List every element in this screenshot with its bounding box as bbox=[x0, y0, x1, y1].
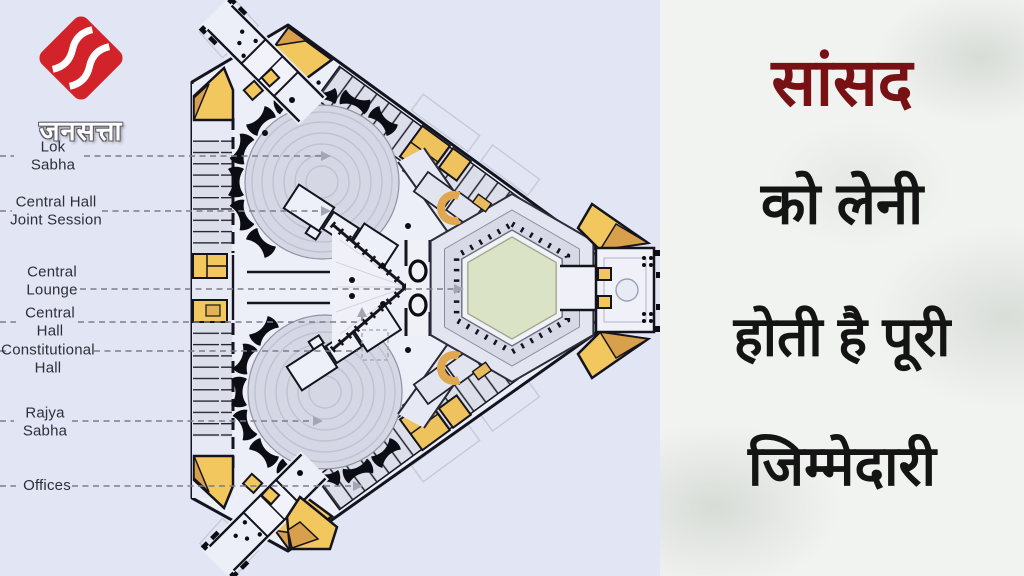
label-central-lounge: Central Lounge bbox=[26, 263, 77, 298]
label-constitutional-hall: Constitutional Hall bbox=[1, 341, 95, 376]
label-central-hall: Central Hall bbox=[25, 304, 75, 339]
jansatta-logo: जनसत्ता bbox=[6, 8, 156, 148]
headline-line-3: होती है पूरी bbox=[660, 298, 1024, 373]
label-rajya-sabha: Rajya Sabha bbox=[23, 404, 67, 439]
headline-panel: सांसद को लेनी होती है पूरी जिम्मेदारी bbox=[660, 0, 1024, 576]
headline-line-2: को लेनी bbox=[660, 162, 1024, 241]
headline-line-4: जिम्मेदारी bbox=[660, 426, 1024, 502]
label-central-hall-joint-session: Central Hall Joint Session bbox=[10, 193, 102, 228]
left-office-wing bbox=[192, 84, 233, 498]
jansatta-logo-icon bbox=[6, 8, 156, 112]
label-lok-sabha: Lok Sabha bbox=[31, 138, 75, 173]
jansatta-logo-text: जनसत्ता bbox=[6, 111, 156, 148]
floor-plan-panel: जनसत्ता Lok Sabha Central Hall Joint Ses… bbox=[0, 0, 662, 576]
headline-word-red: सांसद bbox=[660, 35, 1024, 125]
infographic: जनसत्ता Lok Sabha Central Hall Joint Ses… bbox=[0, 0, 1024, 576]
label-offices: Offices bbox=[23, 477, 71, 495]
apex-corridor bbox=[560, 266, 598, 310]
